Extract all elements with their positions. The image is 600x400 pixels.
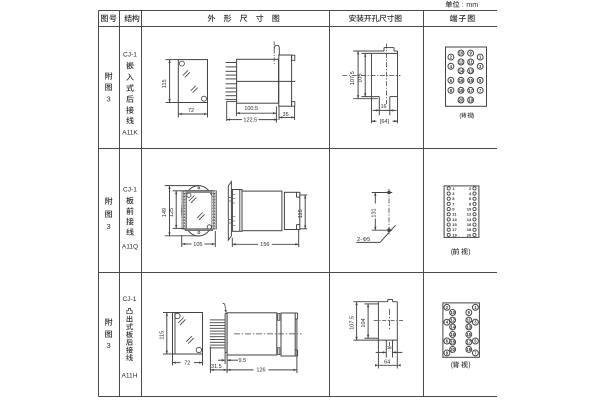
svg-text:CJ-1: CJ-1 (123, 186, 137, 193)
svg-text:11: 11 (468, 59, 473, 64)
svg-text:105: 105 (193, 242, 202, 248)
svg-text:72: 72 (184, 360, 190, 366)
svg-text:15: 15 (467, 332, 472, 337)
svg-text:19: 19 (452, 232, 457, 237)
svg-text:156: 156 (260, 242, 269, 248)
svg-text:131: 131 (371, 208, 377, 217)
svg-text:3: 3 (474, 320, 477, 325)
svg-text:64: 64 (384, 360, 390, 366)
svg-text:A11Q: A11Q (122, 243, 138, 250)
svg-text:115: 115 (160, 331, 166, 340)
svg-text:10: 10 (459, 51, 464, 56)
svg-text:5: 5 (474, 338, 477, 343)
svg-text:20: 20 (459, 97, 464, 102)
svg-text:4: 4 (446, 320, 449, 325)
svg-text:19: 19 (468, 97, 473, 102)
svg-text:17: 17 (467, 339, 472, 344)
svg-text:8: 8 (450, 88, 453, 93)
svg-text:): ) (468, 362, 470, 369)
svg-text:3: 3 (107, 341, 111, 350)
svg-text:8: 8 (446, 350, 449, 355)
svg-text:CJ-1: CJ-1 (123, 296, 137, 303)
svg-text:115: 115 (298, 209, 304, 218)
svg-text:9: 9 (468, 310, 471, 315)
svg-text:13: 13 (467, 324, 472, 329)
svg-text:107.5: 107.5 (350, 316, 356, 330)
svg-text:19: 19 (467, 347, 472, 352)
svg-text:1: 1 (474, 305, 477, 310)
svg-text:14: 14 (450, 324, 455, 329)
svg-text:16: 16 (381, 104, 387, 110)
svg-text:31.5: 31.5 (211, 364, 222, 370)
svg-text:9.5: 9.5 (238, 358, 246, 364)
svg-text:14: 14 (459, 68, 464, 73)
svg-text:149: 149 (162, 208, 168, 217)
svg-text:6: 6 (450, 78, 453, 83)
svg-text:3: 3 (107, 95, 111, 104)
svg-text:104: 104 (361, 318, 367, 327)
svg-text:122.5: 122.5 (243, 117, 257, 123)
svg-text:A11H: A11H (121, 372, 137, 379)
svg-text::: : (461, 1, 463, 8)
svg-text:15: 15 (468, 78, 473, 83)
svg-text:100.5: 100.5 (244, 106, 258, 112)
svg-text:12: 12 (450, 318, 455, 323)
svg-text:13: 13 (468, 68, 473, 73)
svg-text:18: 18 (450, 339, 455, 344)
svg-text:16: 16 (387, 345, 392, 350)
svg-text:7: 7 (479, 88, 482, 93)
svg-text:5: 5 (479, 78, 482, 83)
svg-text:12: 12 (459, 59, 464, 64)
svg-text:CJ-1: CJ-1 (123, 51, 137, 58)
svg-text:3: 3 (107, 222, 111, 231)
svg-text:107.5: 107.5 (350, 71, 356, 85)
svg-text:115: 115 (162, 79, 168, 88)
svg-text:17: 17 (468, 88, 473, 93)
svg-text:125: 125 (169, 208, 175, 217)
svg-text:18: 18 (459, 88, 464, 93)
svg-text:126: 126 (256, 368, 265, 374)
svg-text:4: 4 (450, 64, 453, 69)
svg-text:[64]: [64] (380, 119, 390, 125)
svg-text:1: 1 (479, 55, 482, 60)
svg-text:7: 7 (474, 350, 477, 355)
svg-text:(: ( (459, 113, 461, 119)
svg-text:11: 11 (467, 318, 472, 323)
svg-text:16: 16 (450, 332, 455, 337)
svg-text:20: 20 (450, 347, 455, 352)
svg-text:2: 2 (446, 305, 449, 310)
svg-text:2-: 2- (357, 237, 362, 243)
svg-text:20: 20 (467, 232, 472, 237)
svg-text:A11K: A11K (122, 129, 138, 136)
svg-text:2: 2 (450, 55, 453, 60)
svg-text:Φ5: Φ5 (363, 237, 371, 243)
svg-text:16: 16 (459, 78, 464, 83)
svg-text:6: 6 (446, 338, 449, 343)
svg-text:105: 105 (357, 74, 363, 83)
svg-text:9: 9 (469, 51, 472, 56)
svg-text:35: 35 (283, 112, 289, 118)
svg-text:72: 72 (188, 108, 194, 114)
svg-text:10: 10 (450, 310, 455, 315)
svg-text:3: 3 (479, 64, 482, 69)
svg-text:): ) (468, 249, 470, 256)
svg-text:): ) (472, 113, 474, 119)
svg-text:mm: mm (466, 0, 478, 9)
